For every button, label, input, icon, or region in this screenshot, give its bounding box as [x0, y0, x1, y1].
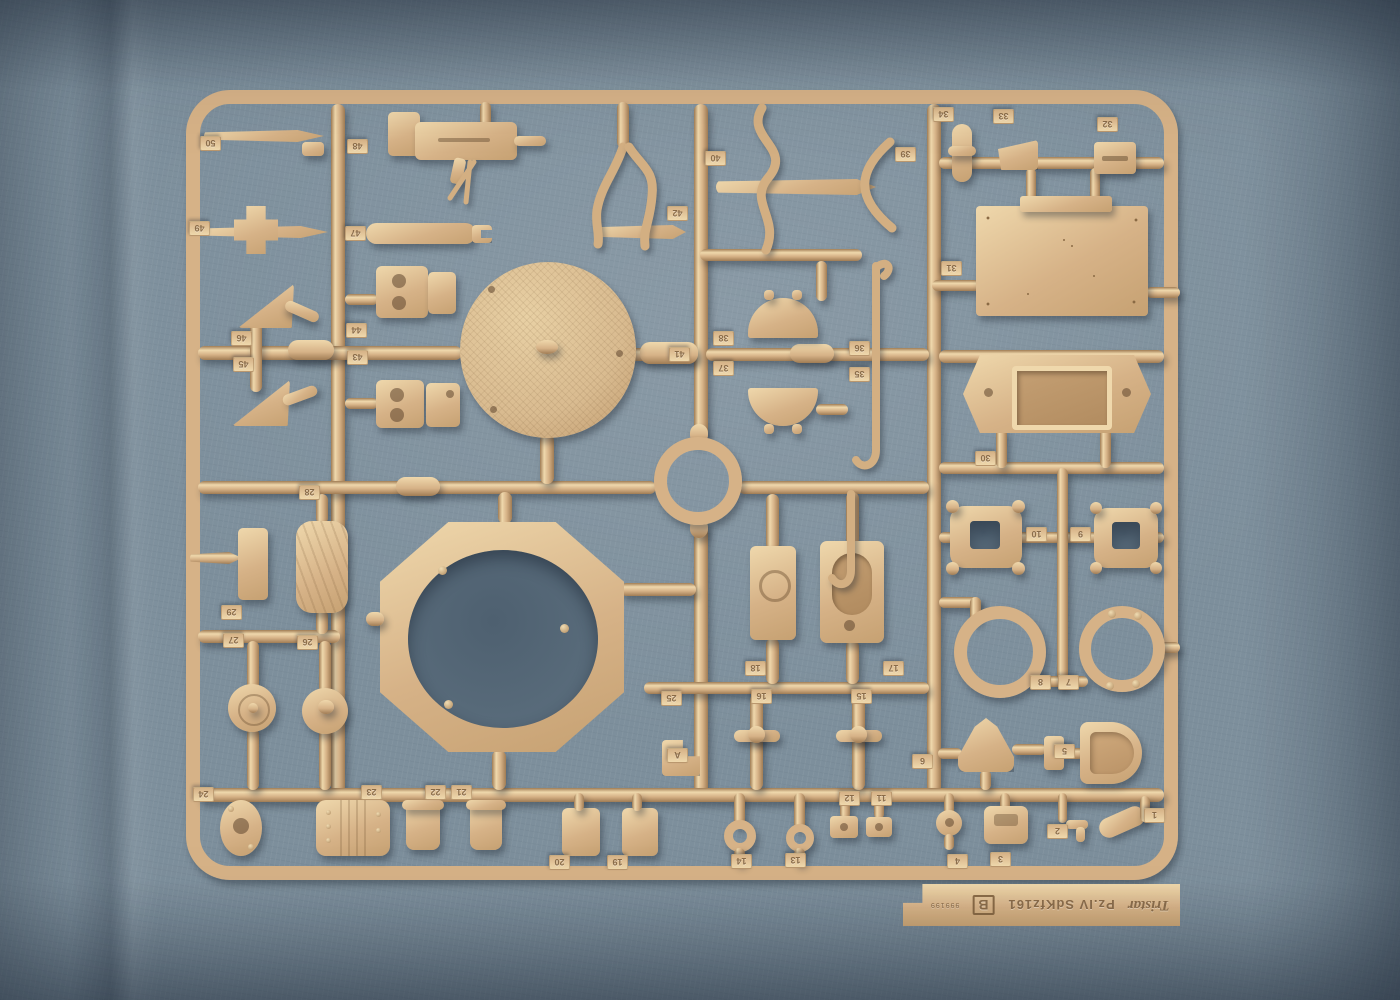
- brand-name: Tristar: [1128, 897, 1170, 914]
- stub-disc-bottom: [540, 434, 554, 484]
- photo-canvas: 50 49 48 47 46 45 44 43 42 41 40 39 38 3…: [0, 0, 1400, 1000]
- box-32-slot: [1102, 156, 1128, 161]
- stub-y-part: [617, 102, 629, 148]
- runner-h2-right: [738, 481, 929, 494]
- part-tag: 46: [231, 331, 252, 346]
- part-tag: 17: [883, 661, 904, 676]
- part-tag: 22: [425, 785, 446, 800]
- hole-43a: [390, 388, 404, 402]
- stub-hexagon2: [1100, 428, 1111, 468]
- part-tag: 9: [1070, 527, 1091, 542]
- stub-cap27-bottom: [247, 728, 259, 790]
- part-hull-plate-31: [976, 206, 1148, 316]
- knob-4-stem: [944, 834, 954, 850]
- stub-box-20: [574, 793, 584, 811]
- part-tag: 34: [933, 107, 954, 122]
- part-tag: 47: [345, 226, 366, 241]
- stub-part17-top: [846, 492, 859, 545]
- part-box-19: [622, 808, 658, 856]
- cap-27-nub: [248, 703, 258, 713]
- hatch-10-knob-2: [1012, 500, 1025, 513]
- wingnut-15-hub: [850, 726, 867, 743]
- stub-cap26-bottom: [319, 728, 331, 790]
- octagon-lug-2: [560, 624, 569, 633]
- stub-part17-bottom: [846, 640, 859, 684]
- hatch-10-opening: [970, 521, 1000, 549]
- nub-h-center: [790, 344, 834, 363]
- octagon-lug-1: [438, 566, 447, 575]
- hole-43b: [390, 408, 404, 422]
- part-tag: 28: [299, 485, 320, 500]
- hexagon-30-rim: [1012, 366, 1112, 430]
- hatch-10-knob-4: [1012, 562, 1025, 575]
- mold-code: 999199: [930, 902, 959, 909]
- part-tag: 40: [705, 151, 726, 166]
- part-tag: 15: [851, 689, 872, 704]
- part-fin-50: [302, 142, 324, 156]
- sprue-label-tab: Tristar Pz.IV SdKfz161 B 999199: [903, 884, 1180, 926]
- part-sideblock-43: [426, 383, 460, 427]
- part-tag: 31: [941, 261, 962, 276]
- block-18-boss: [759, 570, 791, 602]
- part-tag: 44: [346, 323, 367, 338]
- runner-letter-tag: A: [667, 748, 688, 763]
- part-tag: 1: [1144, 808, 1165, 823]
- nub-h2: [396, 477, 440, 496]
- label-text-row: Tristar Pz.IV SdKfz161 B 999199: [930, 895, 1170, 915]
- fabric-shadow-top: [0, 0, 1400, 90]
- stub-octagon-bottom: [492, 750, 506, 790]
- part-gun-muzzle: [514, 136, 546, 146]
- oval-24-rivet1: [228, 806, 234, 812]
- runner-v-right-mid: [1057, 468, 1068, 690]
- part-tag: 13: [785, 853, 806, 868]
- part-tag: 19: [607, 855, 628, 870]
- drum-23-rivet5: [376, 828, 381, 833]
- hatch-9-knob-2: [1150, 502, 1162, 514]
- octagon-lug-3: [444, 700, 453, 709]
- part-tag: 25: [661, 691, 682, 706]
- part-collar-34: [948, 146, 976, 156]
- fabric-shadow-right: [1250, 0, 1400, 1000]
- hatch-9-opening: [1112, 522, 1140, 549]
- part-tag: 32: [1097, 117, 1118, 132]
- hole-44a: [392, 274, 406, 288]
- part-tag: 41: [669, 347, 690, 362]
- octagon-left-lug: [366, 612, 384, 626]
- part-tarp-roll-29: [296, 521, 348, 613]
- part-rod-40: [716, 179, 876, 195]
- disc-hole-2: [490, 406, 497, 413]
- part-tag: 3: [990, 852, 1011, 867]
- part-tag: 2: [1047, 824, 1068, 839]
- hatch-9-knob-3: [1090, 562, 1102, 574]
- fabric-shadow-bottom: [0, 880, 1400, 1000]
- disc-center-boss: [536, 340, 558, 354]
- stub-block44: [345, 294, 378, 305]
- model-code: Pz.IV SdKfz161: [1008, 898, 1115, 913]
- plate-31-hinge-strip: [1020, 196, 1112, 212]
- stub-cap26-top: [319, 641, 331, 693]
- stub-box-19: [632, 793, 642, 811]
- drum-23-rivet4: [376, 812, 381, 817]
- hole-44b: [392, 296, 406, 310]
- disc-hole-3: [616, 350, 623, 357]
- stub-block43: [345, 398, 378, 409]
- part-ring-7: [1079, 606, 1165, 692]
- ring-7-lug-2: [1134, 612, 1142, 620]
- part-gun-slot: [438, 138, 490, 142]
- bit-12-hole: [840, 823, 848, 831]
- part-tag: 30: [975, 451, 996, 466]
- stub-dome-38: [816, 261, 827, 301]
- fabric-fold-left: [70, 0, 160, 1000]
- hinge-38b: [792, 290, 802, 300]
- hole-43c: [446, 390, 454, 398]
- cap-26-nub: [318, 700, 334, 714]
- stub-plate-left: [932, 280, 980, 291]
- hexagon-30-hole-l: [984, 388, 993, 397]
- part-tag: 5: [1054, 744, 1075, 759]
- part-tag: 27: [223, 633, 244, 648]
- runner-vertical-right: [927, 104, 941, 794]
- part-tag: 49: [189, 221, 210, 236]
- stub-plate-right: [1146, 287, 1180, 298]
- nub-h1: [288, 340, 334, 360]
- runner-vertical-center-lower: [694, 524, 708, 794]
- part-bit-2b: [1076, 827, 1085, 842]
- part-sideblock-44: [428, 272, 456, 314]
- plate-17-oval-recess: [832, 553, 872, 615]
- stub-dome-37: [816, 404, 848, 415]
- part-tag: 21: [451, 785, 472, 800]
- stub-octagon-right-upper: [620, 583, 696, 596]
- part-plate-28: [238, 528, 268, 600]
- part-tag: 8: [1030, 675, 1051, 690]
- stub-bell-right: [1012, 744, 1046, 755]
- disc-hole-1: [488, 286, 495, 293]
- part-tag: 24: [193, 787, 214, 802]
- hinge-37a: [764, 424, 774, 434]
- bit-11-hole: [875, 823, 883, 831]
- knob-4-hole: [945, 818, 954, 827]
- part-tag: 11: [871, 791, 892, 806]
- part-tag: 29: [221, 605, 242, 620]
- drum-23-rivet2: [326, 824, 331, 829]
- part-donut-ring: [654, 437, 742, 525]
- part-rod-42: [598, 225, 686, 239]
- stub-part18-bottom: [766, 638, 779, 684]
- part-tag: 23: [361, 785, 382, 800]
- octagon-hole: [408, 550, 598, 728]
- runner-h5-center: [644, 682, 929, 694]
- ring-7-lug-1: [1108, 610, 1116, 618]
- drum-23-rivet3: [326, 838, 331, 843]
- hinge-38a: [764, 290, 774, 300]
- dshape-5-recess: [1090, 732, 1134, 774]
- part-tag: 4: [947, 854, 968, 869]
- part-tag: 43: [347, 350, 368, 365]
- part-tag: 38: [713, 331, 734, 346]
- stub-tarp-bottom: [316, 610, 328, 634]
- part-tag: 45: [233, 357, 254, 372]
- part-tag: 36: [849, 341, 870, 356]
- wingnut-16-hub: [748, 726, 765, 743]
- part-tag: 6: [912, 754, 933, 769]
- hatch-10-knob-3: [946, 562, 959, 575]
- part-tag: 48: [347, 139, 368, 154]
- hatch-9-knob-4: [1150, 562, 1162, 574]
- stub-octagon-top: [498, 492, 512, 524]
- stub-part18-top: [766, 494, 779, 550]
- oval-24-rivet2: [248, 844, 254, 850]
- sprue-letter-badge: B: [973, 895, 995, 915]
- part-tag: 10: [1026, 527, 1047, 542]
- part-box-20: [562, 808, 600, 856]
- part-tag: 39: [895, 147, 916, 162]
- hatch-9-knob-1: [1090, 502, 1102, 514]
- oval-24-hole: [233, 818, 249, 834]
- part-tag: 37: [713, 361, 734, 376]
- hatch-10-knob-1: [946, 500, 959, 513]
- stub-bit-2: [1058, 793, 1067, 823]
- part-rod-47: [366, 223, 476, 244]
- ring-7-lug-4: [1132, 680, 1140, 688]
- stub-hexagon1: [996, 428, 1007, 468]
- drum-23-rivet1: [326, 810, 331, 815]
- hinge-37b: [792, 424, 802, 434]
- plate-17-hole: [844, 620, 855, 631]
- runner-h-top-center: [700, 249, 862, 261]
- part-tag: 42: [667, 206, 688, 221]
- box-3-slot: [994, 814, 1018, 826]
- part-tag: 14: [731, 854, 752, 869]
- part-tag: 50: [200, 136, 221, 151]
- part-tag: 33: [993, 109, 1014, 124]
- ring-7-lug-3: [1106, 682, 1114, 690]
- part-tag: 7: [1058, 675, 1079, 690]
- part-tag: 12: [839, 791, 860, 806]
- cylinder-22-flange: [402, 800, 444, 810]
- cylinder-21-flange: [466, 800, 506, 810]
- part-tag: 20: [549, 855, 570, 870]
- part-tag: 26: [297, 635, 318, 650]
- runner-h-below-hexagon: [939, 462, 1164, 474]
- part-tag: 35: [849, 367, 870, 382]
- part-tag: 16: [751, 689, 772, 704]
- stub-bell-bottom: [980, 770, 991, 790]
- part-tag: 18: [745, 661, 766, 676]
- hexagon-30-hole-r: [1122, 388, 1131, 397]
